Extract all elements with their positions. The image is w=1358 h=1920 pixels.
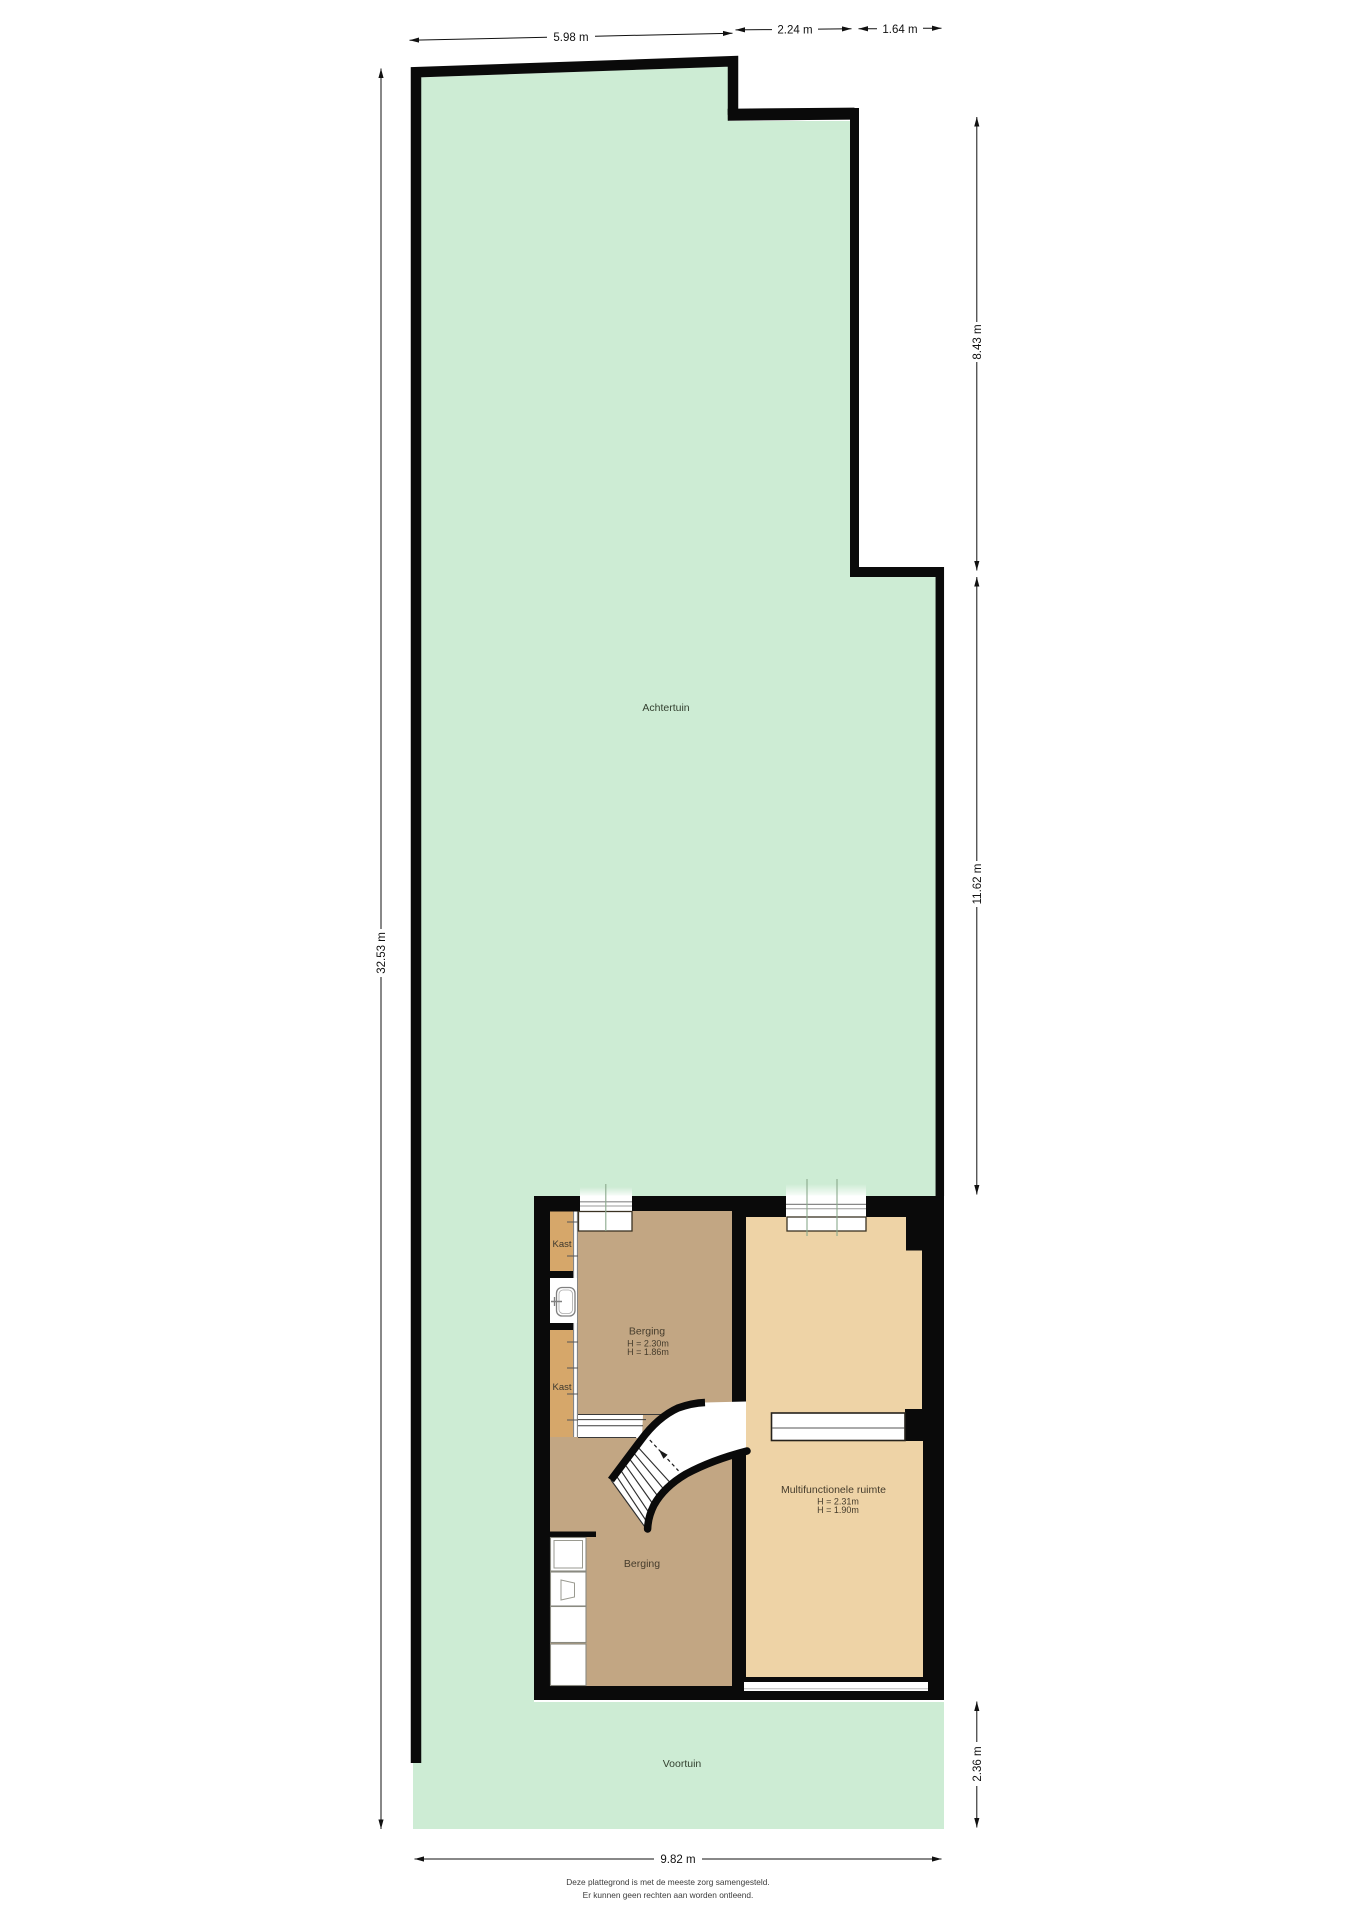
svg-text:Achtertuin: Achtertuin [642, 702, 689, 714]
svg-text:Multifunctionele ruimte: Multifunctionele ruimte [781, 1484, 886, 1496]
svg-text:5.98 m: 5.98 m [553, 32, 588, 44]
svg-text:9.82 m: 9.82 m [660, 1854, 695, 1866]
svg-text:Berging: Berging [629, 1326, 665, 1338]
svg-text:H = 1.86m: H = 1.86m [627, 1347, 669, 1357]
svg-text:8.43 m: 8.43 m [972, 324, 984, 359]
svg-text:Er kunnen geen rechten aan wor: Er kunnen geen rechten aan worden ontlee… [583, 1890, 754, 1900]
svg-text:Kast: Kast [552, 1382, 571, 1393]
svg-text:Voortuin: Voortuin [663, 1758, 702, 1770]
svg-text:11.62 m: 11.62 m [972, 864, 984, 905]
svg-text:1.64 m: 1.64 m [882, 24, 917, 36]
svg-text:Berging: Berging [624, 1558, 660, 1570]
svg-text:Deze plattegrond is met de mee: Deze plattegrond is met de meeste zorg s… [566, 1877, 769, 1887]
svg-text:Kast: Kast [552, 1239, 571, 1250]
svg-text:32.53 m: 32.53 m [376, 932, 388, 974]
svg-text:2.24 m: 2.24 m [777, 24, 812, 36]
svg-text:2.36 m: 2.36 m [972, 1746, 984, 1781]
svg-text:H = 1.90m: H = 1.90m [817, 1505, 859, 1515]
